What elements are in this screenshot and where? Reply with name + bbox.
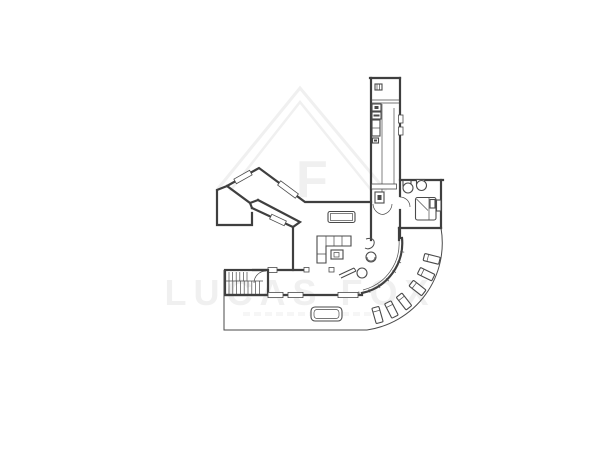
threshold (372, 184, 397, 189)
watermark-monogram: F (296, 151, 328, 209)
round-chair (357, 268, 367, 278)
column (329, 268, 334, 273)
round-chair (417, 181, 427, 191)
wall-notch (399, 115, 404, 123)
window (288, 292, 303, 297)
fixture (375, 84, 382, 90)
zigzag-lower-band (252, 200, 300, 227)
zigzag-notch-walls (227, 186, 258, 208)
dining-table (328, 212, 355, 223)
coffee-table (331, 250, 343, 259)
corridor-divider (371, 100, 399, 103)
sink-detail (378, 195, 382, 200)
sun-lounger (423, 253, 440, 264)
appliance-detail (375, 106, 379, 109)
fixture-detail (374, 140, 377, 142)
chaise-chair (365, 238, 374, 248)
wall-notch (399, 127, 404, 135)
door-threshold (268, 268, 277, 273)
corner-bedroom (399, 180, 443, 229)
window (270, 214, 287, 225)
window (234, 170, 252, 183)
round-chair (366, 252, 376, 262)
column (304, 268, 309, 273)
window (338, 292, 358, 297)
side-cabinet (437, 200, 442, 211)
round-chair (403, 183, 413, 193)
double-swing-door (373, 204, 392, 215)
appliance-detail (374, 115, 380, 117)
living-furniture (317, 212, 376, 279)
floor-plan-page: F LUCAS FOX (0, 0, 600, 450)
window (268, 292, 283, 297)
watermark: F LUCAS FOX (164, 88, 435, 314)
pillow (430, 200, 435, 209)
floor-plan-canvas: F LUCAS FOX (0, 0, 600, 450)
bedroom-door-arc (400, 197, 410, 207)
service-corridor (370, 78, 403, 240)
terrace-table (311, 307, 342, 321)
